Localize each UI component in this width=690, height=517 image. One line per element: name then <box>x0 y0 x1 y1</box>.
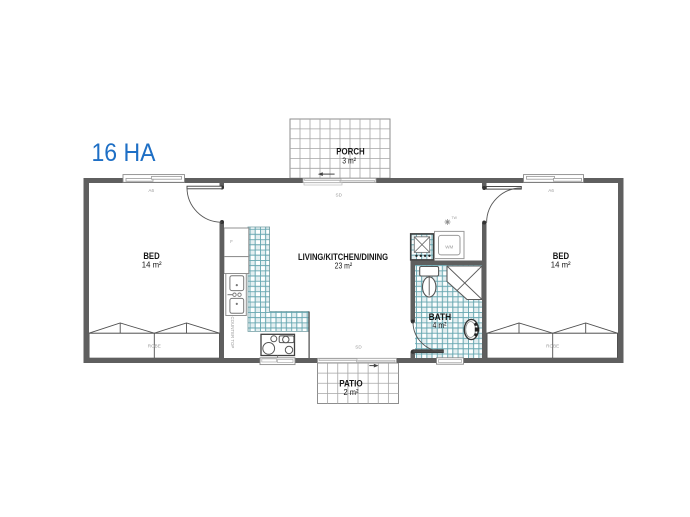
svg-text:A6: A6 <box>148 188 154 193</box>
svg-text:L: L <box>477 269 481 271</box>
svg-text:SD: SD <box>336 192 343 197</box>
svg-text:ROBE: ROBE <box>546 343 559 348</box>
svg-text:A6: A6 <box>548 188 554 193</box>
svg-text:14 m²: 14 m² <box>551 260 571 270</box>
svg-text:14 m²: 14 m² <box>142 260 162 270</box>
svg-text:16 HA: 16 HA <box>92 139 156 167</box>
svg-text:23 m²: 23 m² <box>335 261 353 271</box>
svg-text:SD: SD <box>355 345 362 350</box>
svg-text:F: F <box>230 239 233 244</box>
svg-text:ROBE: ROBE <box>148 343 161 348</box>
svg-text:TW: TW <box>452 216 458 220</box>
svg-text:2 m²: 2 m² <box>344 387 359 397</box>
svg-text:4 m²: 4 m² <box>433 320 447 330</box>
svg-text:3 m²: 3 m² <box>342 155 356 165</box>
svg-text:WM: WM <box>445 245 453 250</box>
svg-text:COUNTER TOP: COUNTER TOP <box>230 317 235 349</box>
